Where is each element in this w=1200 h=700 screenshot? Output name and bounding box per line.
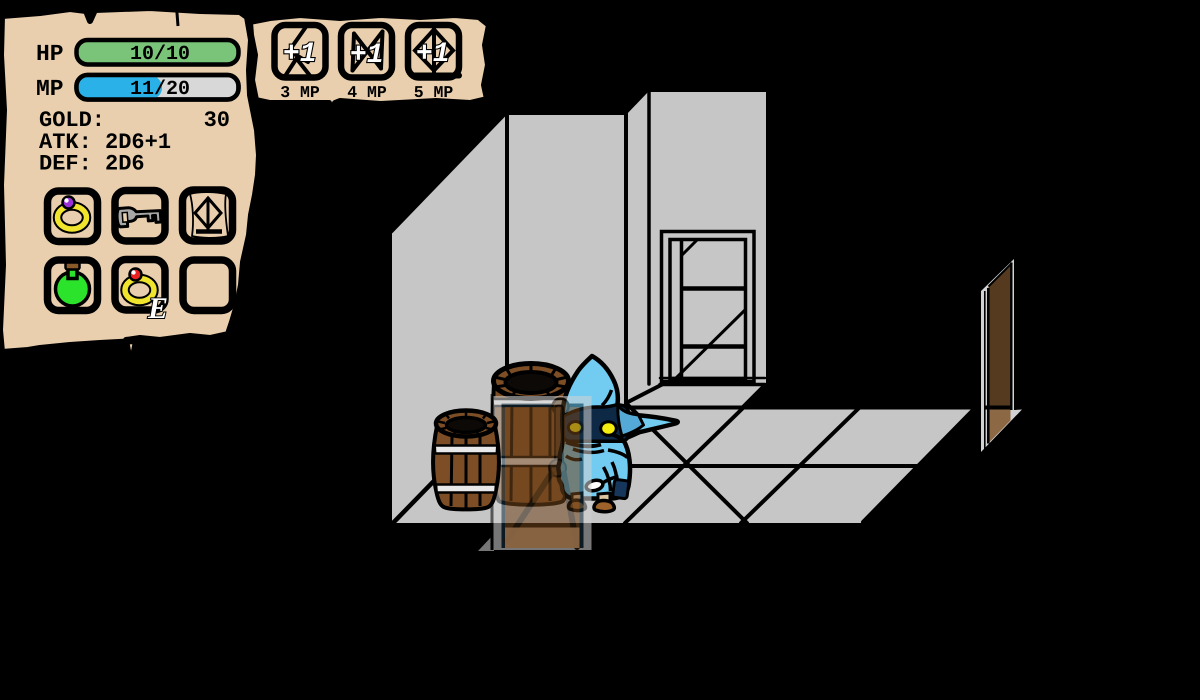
svg-text:E: E — [147, 292, 168, 325]
svg-text:10/10: 10/10 — [130, 43, 190, 66]
svg-text:DEF: 2D6: DEF: 2D6 — [39, 152, 145, 177]
svg-text:HP: HP — [36, 41, 64, 67]
svg-text:+1: +1 — [283, 39, 317, 70]
svg-text:+1: +1 — [416, 39, 450, 70]
svg-text:3 MP: 3 MP — [280, 83, 320, 102]
svg-text:5 MP: 5 MP — [414, 83, 454, 102]
svg-text:30: 30 — [204, 108, 230, 133]
svg-text:4 MP: 4 MP — [347, 83, 387, 102]
svg-text:MP: MP — [36, 76, 64, 102]
svg-text:+1: +1 — [350, 40, 384, 71]
svg-text:11/20: 11/20 — [130, 78, 190, 101]
